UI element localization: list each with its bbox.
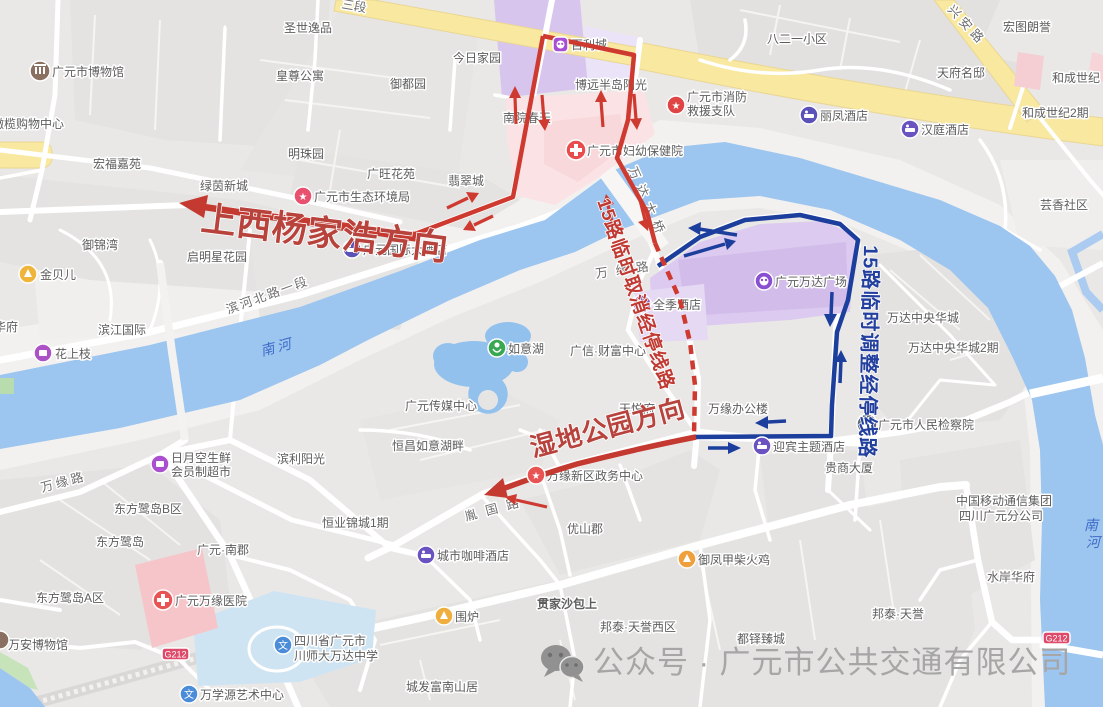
svg-text:启明星花园: 启明星花园 xyxy=(187,249,247,264)
svg-text:G212: G212 xyxy=(164,650,186,660)
svg-text:明珠园: 明珠园 xyxy=(288,147,324,161)
svg-text:四川广元分公司: 四川广元分公司 xyxy=(959,509,1043,523)
svg-text:今日家园: 今日家园 xyxy=(453,50,501,65)
svg-text:丽凤酒店: 丽凤酒店 xyxy=(820,109,868,123)
svg-text:橄榄购物中心: 橄榄购物中心 xyxy=(0,116,64,131)
svg-text:八二一小区: 八二一小区 xyxy=(767,32,827,46)
svg-text:广元万缘医院: 广元万缘医院 xyxy=(175,594,247,608)
svg-text:华府: 华府 xyxy=(0,319,18,334)
svg-text:广元万达广场: 广元万达广场 xyxy=(775,275,847,289)
svg-text:水岸华府: 水岸华府 xyxy=(987,569,1035,584)
svg-text:贵商大厦: 贵商大厦 xyxy=(825,460,873,475)
svg-text:广元市人民检察院: 广元市人民检察院 xyxy=(878,417,974,432)
svg-text:滨江国际: 滨江国际 xyxy=(98,322,146,337)
svg-text:广旺花苑: 广旺花苑 xyxy=(367,166,415,181)
svg-text:滨利阳光: 滨利阳光 xyxy=(277,451,325,466)
svg-text:邦泰·天誉西区: 邦泰·天誉西区 xyxy=(600,620,676,634)
svg-text:文: 文 xyxy=(184,688,194,701)
svg-text:救援支队: 救援支队 xyxy=(687,103,735,118)
svg-text:芸香社区: 芸香社区 xyxy=(1040,197,1088,212)
svg-text:金贝儿: 金贝儿 xyxy=(40,267,76,282)
svg-text:优山郡: 优山郡 xyxy=(567,522,603,536)
svg-text:围炉: 围炉 xyxy=(455,610,479,624)
svg-text:四川省广元市: 四川省广元市 xyxy=(294,633,366,648)
svg-text:翡翠城: 翡翠城 xyxy=(448,174,484,188)
svg-text:绿茵新城: 绿茵新城 xyxy=(200,178,248,193)
svg-text:汉庭酒店: 汉庭酒店 xyxy=(921,122,969,137)
svg-text:御锦湾: 御锦湾 xyxy=(82,237,118,252)
svg-text:城发富南山居: 城发富南山居 xyxy=(406,679,478,694)
svg-text:花上枝: 花上枝 xyxy=(55,346,91,361)
svg-text:文: 文 xyxy=(278,639,288,652)
svg-text:恒业锦城1期: 恒业锦城1期 xyxy=(322,516,389,530)
svg-text:御都园: 御都园 xyxy=(390,76,426,91)
svg-text:博远半岛阳光: 博远半岛阳光 xyxy=(575,77,647,92)
svg-text:万安博物馆: 万安博物馆 xyxy=(8,637,68,652)
svg-text:万达中央华城: 万达中央华城 xyxy=(887,310,959,325)
svg-text:广信·财富中心: 广信·财富中心 xyxy=(570,343,646,358)
svg-text:宏福嘉苑: 宏福嘉苑 xyxy=(93,156,141,171)
svg-text:公众号 · 广元市公共交通有限公司: 公众号 · 广元市公共交通有限公司 xyxy=(593,645,1072,680)
svg-text:万缘办公楼: 万缘办公楼 xyxy=(708,401,768,416)
svg-text:城市咖啡酒店: 城市咖啡酒店 xyxy=(437,548,509,563)
svg-text:川师大万达中学: 川师大万达中学 xyxy=(294,648,378,663)
svg-text:御凤甲柴火鸡: 御凤甲柴火鸡 xyxy=(698,552,770,567)
svg-text:中国移动通信集团: 中国移动通信集团 xyxy=(956,493,1052,508)
svg-text:圣世逸品: 圣世逸品 xyxy=(284,21,332,35)
svg-text:邦泰·天誉: 邦泰·天誉 xyxy=(872,607,924,621)
svg-text:广元市消防: 广元市消防 xyxy=(687,89,747,104)
svg-text:万达中央华城2期: 万达中央华城2期 xyxy=(908,340,999,355)
svg-text:广元市妇幼保健院: 广元市妇幼保健院 xyxy=(587,143,683,158)
svg-text:G212: G212 xyxy=(1045,634,1067,644)
svg-text:和成世纪: 和成世纪 xyxy=(1052,71,1100,85)
svg-text:和成世纪2期: 和成世纪2期 xyxy=(1022,106,1089,120)
svg-text:★: ★ xyxy=(532,471,541,482)
svg-text:日月空生鲜: 日月空生鲜 xyxy=(171,451,231,465)
svg-text:东方鹭岛B区: 东方鹭岛B区 xyxy=(114,501,182,516)
svg-text:全季酒店: 全季酒店 xyxy=(653,297,701,312)
svg-text:广元市生态环境局: 广元市生态环境局 xyxy=(314,189,410,204)
svg-text:天府名邸: 天府名邸 xyxy=(937,65,985,80)
svg-text:广元市博物馆: 广元市博物馆 xyxy=(52,64,124,79)
svg-text:★: ★ xyxy=(299,192,308,203)
svg-text:万学源艺术中心: 万学源艺术中心 xyxy=(200,687,284,702)
svg-text:皇尊公寓: 皇尊公寓 xyxy=(276,68,324,83)
svg-text:恒昌如意湖畔: 恒昌如意湖畔 xyxy=(392,438,464,453)
svg-text:宏图朗誉: 宏图朗誉 xyxy=(1003,19,1051,34)
svg-text:广元传媒中心: 广元传媒中心 xyxy=(405,398,477,413)
svg-text:迎宾主题酒店: 迎宾主题酒店 xyxy=(773,439,845,454)
svg-text:如意湖: 如意湖 xyxy=(508,341,544,356)
svg-text:都铎臻城: 都铎臻城 xyxy=(737,632,785,646)
svg-text:贯家沙包上: 贯家沙包上 xyxy=(537,596,597,611)
svg-text:★: ★ xyxy=(672,101,681,112)
svg-text:南: 南 xyxy=(1084,517,1100,533)
svg-text:广元·南郡: 广元·南郡 xyxy=(197,542,249,557)
svg-text:会员制超市: 会员制超市 xyxy=(171,464,231,479)
svg-text:东方鹭岛: 东方鹭岛 xyxy=(96,534,144,549)
svg-text:东方鹭岛A区: 东方鹭岛A区 xyxy=(36,590,104,605)
